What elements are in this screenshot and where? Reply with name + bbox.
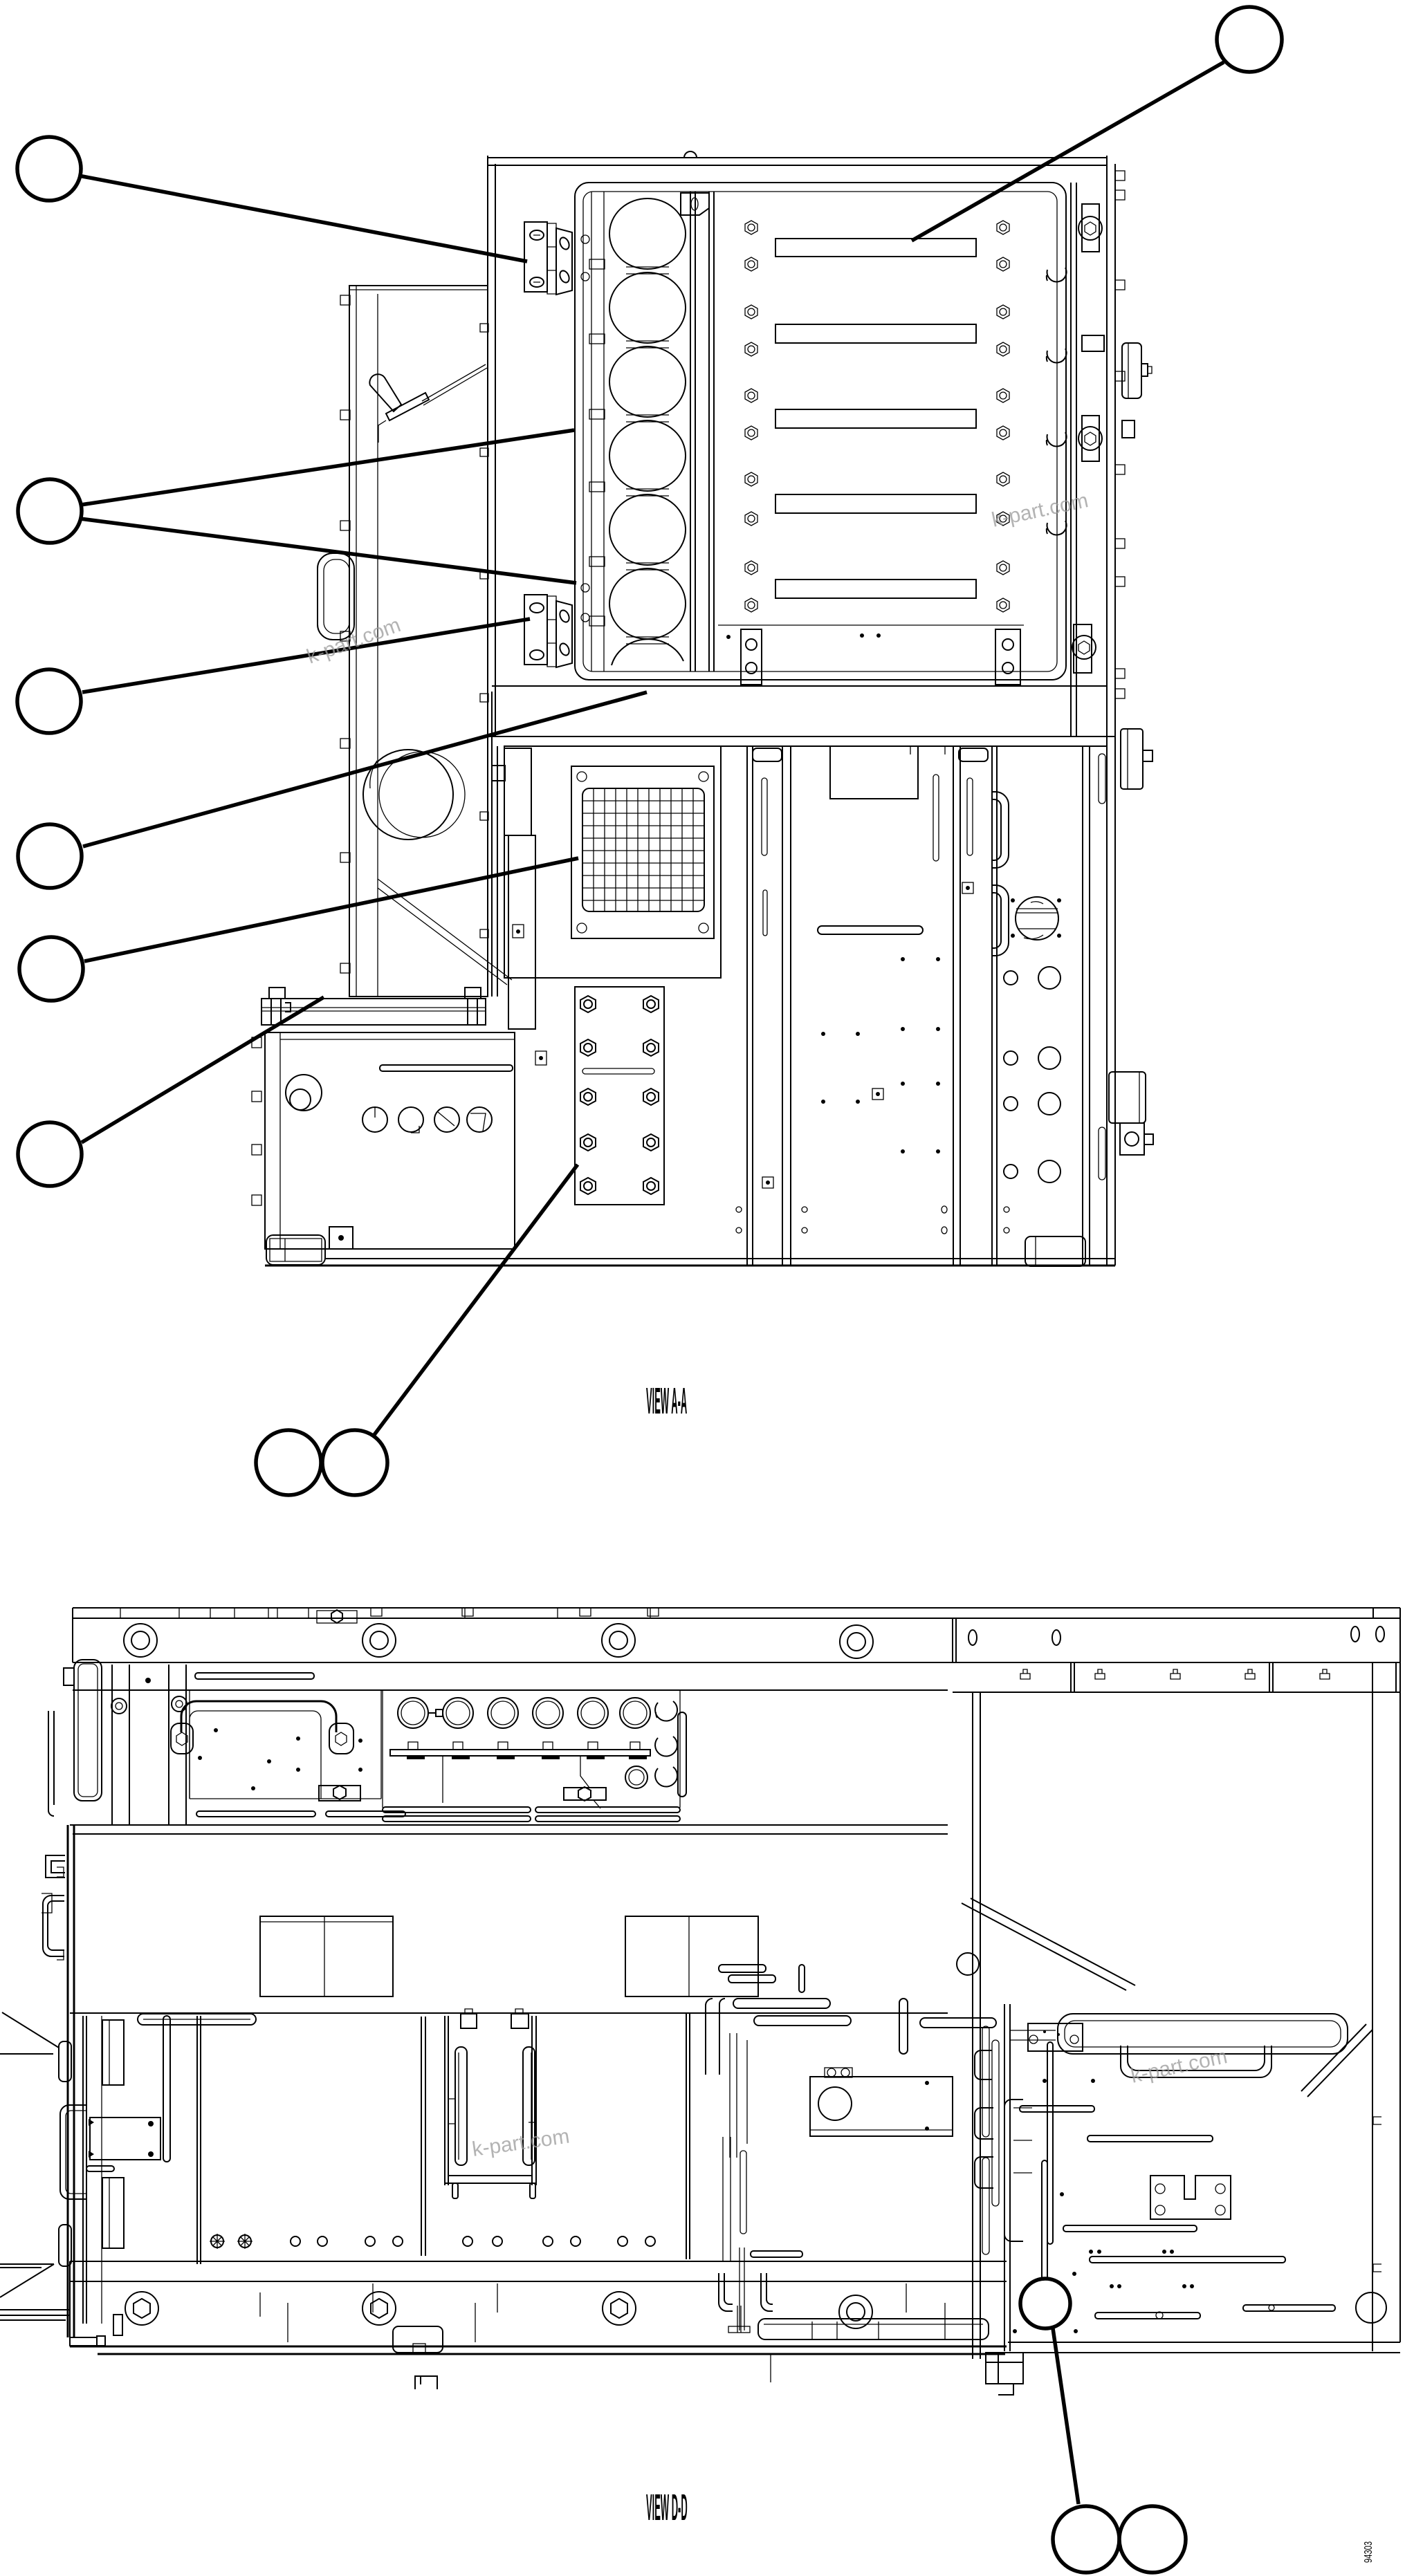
svg-text:VIEW A-A: VIEW A-A — [646, 1380, 687, 1423]
svg-text:VIEW D-D: VIEW D-D — [646, 2487, 688, 2529]
svg-text:94303: 94303 — [1361, 2541, 1375, 2563]
